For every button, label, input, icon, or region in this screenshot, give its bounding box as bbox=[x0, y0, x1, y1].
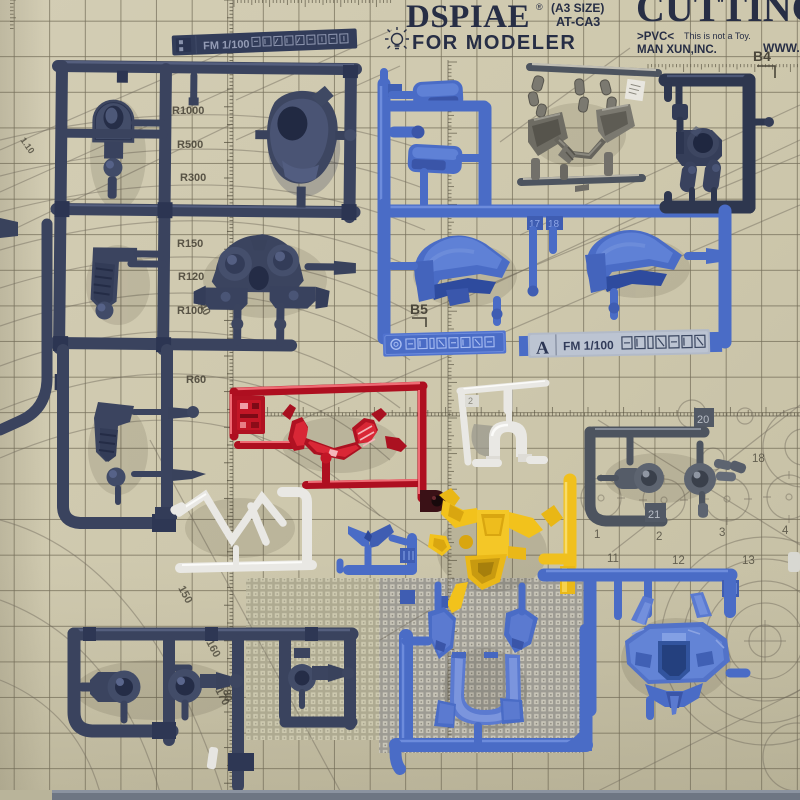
svg-text:21: 21 bbox=[648, 509, 660, 521]
svg-text:20: 20 bbox=[697, 414, 709, 426]
svg-text:1: 1 bbox=[594, 529, 600, 541]
svg-text:R60: R60 bbox=[186, 374, 206, 386]
svg-text:FOR MODELER: FOR MODELER bbox=[412, 32, 576, 54]
svg-text:CUTTING M: CUTTING M bbox=[636, 0, 800, 30]
svg-text:B5: B5 bbox=[410, 301, 428, 317]
svg-text:4: 4 bbox=[782, 525, 789, 537]
svg-text:R150: R150 bbox=[177, 238, 203, 250]
svg-text:2: 2 bbox=[656, 531, 662, 543]
svg-text:3: 3 bbox=[719, 527, 725, 539]
svg-text:This is not a Toy.: This is not a Toy. bbox=[684, 31, 751, 41]
svg-text:R120: R120 bbox=[178, 271, 204, 283]
svg-text:R300: R300 bbox=[180, 172, 206, 184]
svg-text:FM 1/100: FM 1/100 bbox=[203, 39, 250, 53]
svg-text:>PVC<: >PVC< bbox=[637, 31, 674, 43]
svg-text:18: 18 bbox=[752, 453, 765, 465]
svg-text:(A3 SIZE): (A3 SIZE) bbox=[551, 1, 604, 15]
svg-text:12: 12 bbox=[672, 555, 685, 567]
svg-text:DSPIAE: DSPIAE bbox=[406, 0, 530, 35]
svg-text:MAN XUN,INC.: MAN XUN,INC. bbox=[637, 44, 717, 56]
svg-text:A: A bbox=[536, 337, 549, 357]
svg-text:®: ® bbox=[536, 2, 543, 12]
svg-text:R1000: R1000 bbox=[172, 105, 204, 117]
svg-text:WWW.: WWW. bbox=[763, 41, 800, 55]
svg-text:2: 2 bbox=[468, 396, 473, 406]
svg-text:13: 13 bbox=[742, 555, 755, 567]
svg-text:R500: R500 bbox=[177, 139, 203, 151]
svg-text:FM 1/100: FM 1/100 bbox=[563, 338, 614, 353]
svg-text:AT-CA3: AT-CA3 bbox=[556, 15, 600, 29]
svg-text:11: 11 bbox=[607, 553, 619, 565]
